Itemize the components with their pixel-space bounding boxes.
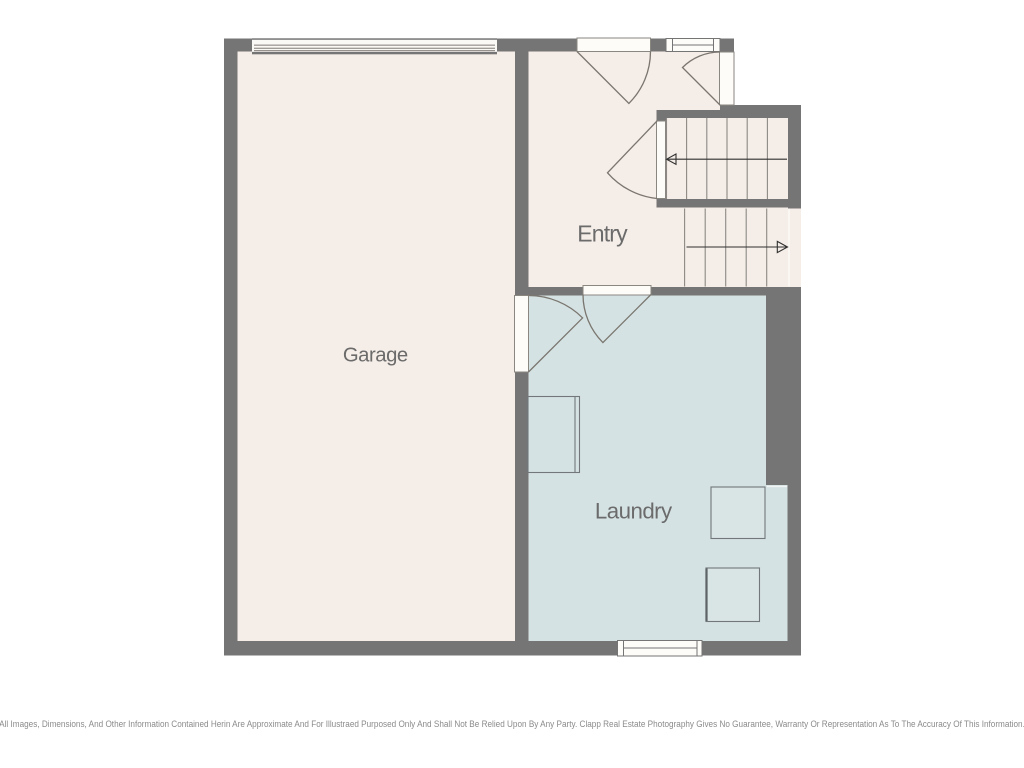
svg-text:Laundry: Laundry bbox=[595, 498, 673, 523]
svg-text:Entry: Entry bbox=[577, 220, 628, 246]
svg-text:Garage: Garage bbox=[343, 344, 408, 366]
